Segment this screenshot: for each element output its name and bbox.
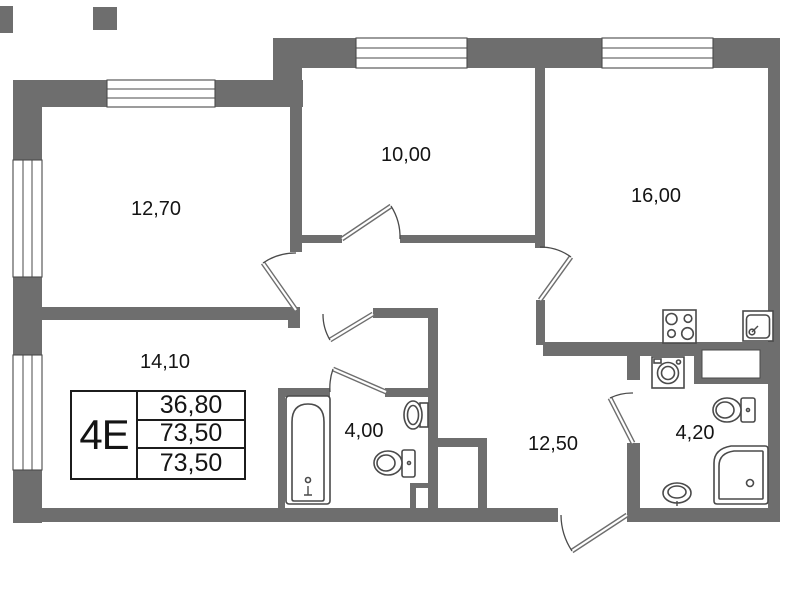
wall-segment [627, 508, 780, 522]
apartment-type-label: 4Е [72, 392, 138, 478]
apartment-info-table: 4Е 36,80 73,50 73,50 [70, 390, 246, 480]
room-label-top-middle: 10,00 [381, 144, 431, 166]
wall-segment [768, 38, 780, 522]
fixtures [286, 310, 773, 506]
wall-segment [428, 310, 438, 508]
door-room-top-left [263, 253, 296, 310]
wall-segment [288, 310, 300, 328]
door-room-top-right [540, 247, 571, 300]
stove-icon [663, 310, 696, 343]
wall-segment [42, 307, 300, 320]
window-icon [13, 160, 42, 277]
room-label-top-right: 16,00 [631, 185, 681, 207]
washing-machine-icon [652, 357, 684, 388]
room-label-bottom-left: 14,10 [140, 351, 190, 373]
wall-segment [627, 443, 640, 508]
wall-segment [278, 388, 285, 508]
entrance-door [561, 515, 627, 551]
floor-plan: 12,70 10,00 16,00 14,10 4,00 12,50 4,20 … [0, 0, 799, 600]
toilet-icon [374, 450, 415, 477]
wall-segment [535, 68, 545, 248]
floor-plan-canvas: 12,70 10,00 16,00 14,10 4,00 12,50 4,20 [0, 0, 799, 600]
corner-shower-icon [714, 446, 768, 504]
duct-opening [702, 350, 760, 378]
door-vestibule [323, 314, 373, 340]
toilet-icon [713, 398, 755, 422]
room-label-bathroom: 4,00 [345, 420, 384, 442]
wall-segment [13, 508, 558, 522]
wash-basin-icon [663, 483, 691, 506]
room-label-top-left: 12,70 [131, 198, 181, 220]
wall-segment [13, 80, 42, 160]
window-icon [13, 355, 42, 470]
wall-segment [300, 235, 342, 243]
door-room-top-middle [342, 206, 400, 239]
area-value: 73,50 [138, 449, 244, 478]
area-value: 36,80 [138, 392, 244, 421]
wall-segment [13, 277, 42, 355]
kitchen-sink-icon [743, 311, 773, 341]
apartment-area-rows: 36,80 73,50 73,50 [138, 392, 244, 478]
wall-segment [467, 38, 602, 68]
shaft-frame [410, 483, 416, 508]
bathtub-icon [286, 396, 330, 504]
wall-segment [400, 235, 535, 243]
window-icon [602, 38, 713, 68]
window-icon [356, 38, 467, 68]
room-label-hallway: 12,50 [528, 433, 578, 455]
window-icon [107, 80, 215, 107]
wall-segment [273, 38, 356, 68]
area-value: 73,50 [138, 421, 244, 450]
wall-segment [627, 356, 640, 380]
wall-segment [93, 7, 117, 30]
door-wc [610, 393, 633, 443]
wall-segment [290, 103, 302, 252]
room-label-wc: 4,20 [676, 422, 715, 444]
door-bathroom [330, 369, 386, 392]
wall-segment [536, 300, 545, 345]
wall-segment [0, 6, 13, 33]
wall-segment [478, 438, 487, 508]
wash-basin-icon [404, 401, 428, 429]
